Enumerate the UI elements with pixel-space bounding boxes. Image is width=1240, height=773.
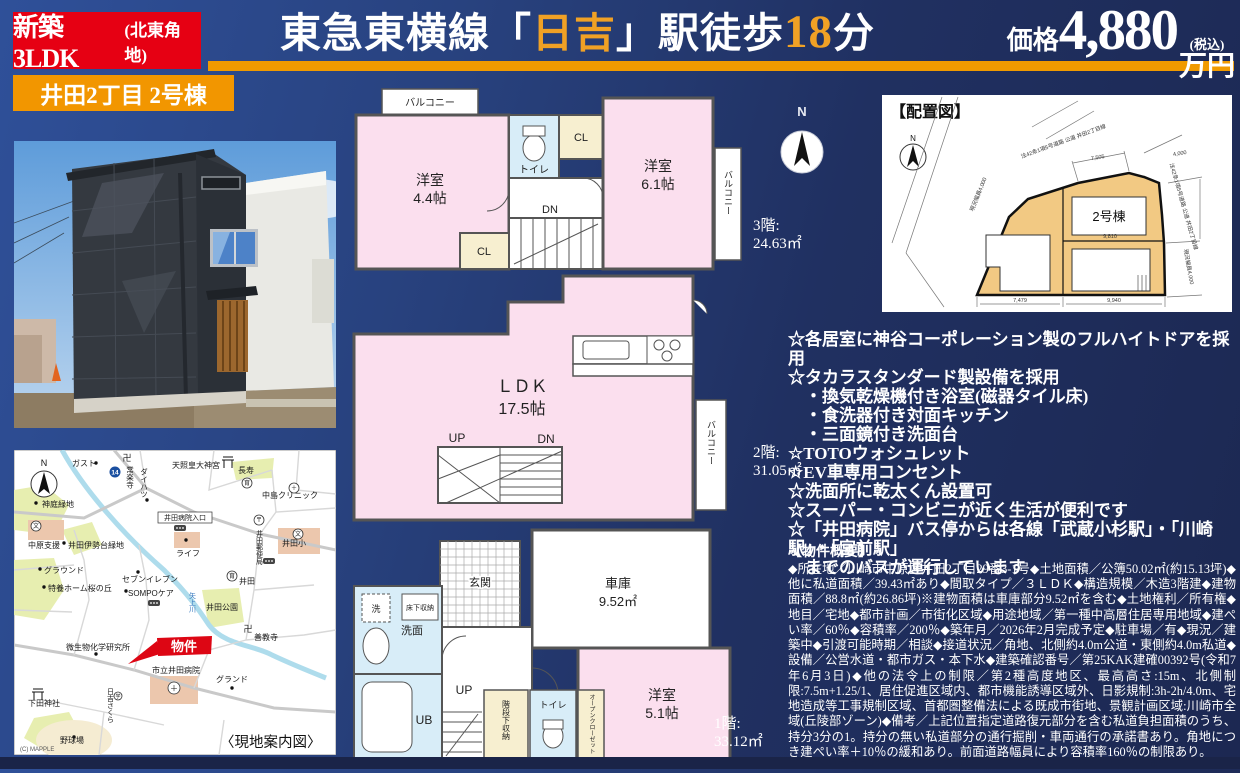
building-label: 2号棟 bbox=[1092, 209, 1125, 224]
site-plan: 【配置図】 N 2号棟 bbox=[882, 95, 1232, 312]
map-label: 野球場 bbox=[60, 735, 84, 745]
room-label: CL bbox=[477, 246, 491, 258]
feature-item: ・換気乾燥機付き浴室(磁器タイル床) bbox=[788, 387, 1240, 406]
room-size: 9.52㎡ bbox=[599, 594, 637, 609]
map-label: 井田小 bbox=[282, 538, 306, 548]
title-seg2: 」駅徒歩 bbox=[616, 10, 784, 56]
stairs-dn-label: DN bbox=[537, 432, 554, 446]
floor-area: 33.12㎡ bbox=[714, 734, 763, 752]
floorplan-2f: ＬＤＫ 17.5帖 UP DN バルコニー bbox=[350, 272, 755, 524]
map-label: 善教寺 bbox=[254, 632, 278, 642]
compass-n: N bbox=[41, 458, 48, 468]
room-size: 17.5帖 bbox=[498, 400, 545, 418]
room-label: バルコニー bbox=[723, 170, 733, 215]
header-underline bbox=[208, 61, 1234, 71]
site-plan-title: 【配置図】 bbox=[890, 103, 970, 121]
feature-item: ☆スーパー・コンビニが近く生活が便利です bbox=[788, 501, 1240, 520]
svg-text:〒: 〒 bbox=[256, 517, 262, 524]
location-badge: 井田2丁目 2号棟 bbox=[13, 75, 234, 111]
map-label: 井田公園 bbox=[206, 602, 238, 612]
price-label: 価格 bbox=[1007, 20, 1059, 57]
map-label: セブンイレブン bbox=[122, 574, 178, 584]
map-label: 日吉さくら bbox=[107, 688, 115, 723]
room-label: トイレ bbox=[539, 700, 566, 710]
compass-n: N bbox=[797, 104, 806, 119]
stairs-up-label: UP bbox=[456, 683, 473, 697]
stairs-up-label: UP bbox=[449, 431, 466, 445]
feature-item: ☆タカラスタンダード製設備を採用 bbox=[788, 368, 1240, 387]
map-label: 市立井田病院 bbox=[152, 665, 200, 675]
room-size: 6.1帖 bbox=[641, 176, 674, 192]
feature-item: ☆各居室に神谷コーポレーション製のフルハイトドアを採用 bbox=[788, 330, 1240, 368]
svg-text:文: 文 bbox=[33, 522, 39, 530]
new-build-badge: 新築3LDK (北東角地) bbox=[13, 12, 201, 69]
map-label: 中原支援 bbox=[28, 540, 60, 550]
room-label: 玄関 bbox=[469, 575, 491, 589]
overview-body: ◆所在地／川崎市中原区井田2丁目29番3-1号◆土地面積／公簿50.02㎡(約1… bbox=[788, 562, 1236, 760]
room-label: トイレ bbox=[519, 165, 549, 176]
stairs-dn-label: DN bbox=[542, 204, 558, 216]
map-label: グランド bbox=[216, 674, 248, 684]
feature-item: ・三面鏡付き洗面台 bbox=[788, 425, 1240, 444]
map-label: 井田郵便局 bbox=[256, 529, 264, 566]
floor-area: 24.63㎡ bbox=[753, 236, 802, 254]
map-label: 中島クリニック bbox=[262, 490, 318, 500]
temple-icon: 卍 bbox=[243, 624, 252, 634]
route-number: 14 bbox=[111, 470, 119, 477]
map-caption: 〈現地案内図〉 bbox=[220, 733, 322, 751]
map-label: グラウンド bbox=[44, 565, 84, 575]
room-label: バルコニー bbox=[405, 97, 455, 109]
map-label: ライフ bbox=[176, 549, 200, 558]
svg-text:育: 育 bbox=[229, 572, 235, 580]
dim-label: 7,479 bbox=[1013, 298, 1027, 304]
map-label: 特養ホーム桜の丘 bbox=[48, 583, 112, 593]
floor-name: 3階: bbox=[753, 218, 802, 236]
price-block: 価格 4,880 (税込) 万円 bbox=[900, 2, 1235, 60]
room-size: 5.1帖 bbox=[645, 705, 678, 721]
map-label: 井田 bbox=[239, 576, 255, 586]
dim-label: 9,940 bbox=[1107, 298, 1121, 304]
station-name: 日吉 bbox=[532, 10, 616, 56]
map-label: SOMPOケア bbox=[128, 589, 174, 598]
compass-n: N bbox=[910, 134, 916, 143]
badge-sub-text: (北東角地) bbox=[124, 16, 201, 66]
dim-label: 9,810 bbox=[1103, 234, 1117, 240]
title-seg3: 分 bbox=[833, 10, 875, 56]
area-map: N 文文 育育 〒＋ ＋学 bbox=[14, 450, 336, 755]
svg-text:＋: ＋ bbox=[170, 684, 178, 693]
room-label: 洗面 bbox=[401, 624, 423, 637]
svg-text:育: 育 bbox=[244, 479, 250, 487]
house-photo-art bbox=[14, 141, 336, 428]
page-title: 東急東横線「日吉」駅徒歩18分 bbox=[280, 3, 875, 61]
floor-name: 1階: bbox=[714, 716, 763, 734]
feature-item: ☆EV車専用コンセント bbox=[788, 463, 1240, 482]
property-label: 物件 bbox=[171, 639, 197, 654]
bottom-border bbox=[0, 757, 1240, 769]
price-unit: 万円 bbox=[1179, 52, 1235, 82]
feature-item: ・食洗器付き対面キッチン bbox=[788, 406, 1240, 425]
floorplan-3f: バルコニー トイレ CL CL 洋室 4.4帖 DN 洋室 6.1帖 バルコニー bbox=[352, 86, 747, 276]
house-photo bbox=[14, 141, 336, 428]
feature-item: ☆TOTOウォシュレット bbox=[788, 444, 1240, 463]
room-label: ＬＤＫ bbox=[497, 377, 548, 396]
svg-text:文: 文 bbox=[295, 530, 301, 538]
room-label: UB bbox=[416, 713, 433, 727]
price-tax-note: (税込) bbox=[1190, 38, 1225, 52]
room-label: CL bbox=[574, 132, 588, 144]
real-estate-flyer: 新築3LDK (北東角地) 井田2丁目 2号棟 東急東横線「日吉」駅徒歩18分 … bbox=[0, 0, 1240, 769]
room-label: バルコニー bbox=[706, 420, 716, 465]
room-label: 洋室 bbox=[648, 687, 676, 703]
price-amount: 4,880 bbox=[1059, 2, 1177, 60]
room-size: 4.4帖 bbox=[413, 190, 446, 206]
temple-icon: 卍 bbox=[122, 453, 131, 463]
map-label: 井田伊勢台緑地 bbox=[68, 540, 124, 550]
map-label: 下田神社 bbox=[28, 698, 60, 708]
bus-stop-label: 井田病院入口 bbox=[164, 513, 206, 522]
river-label: 矢上川 bbox=[189, 591, 197, 613]
map-label: 常楽寺 bbox=[125, 466, 134, 489]
room-label: オープンクローゼット bbox=[588, 694, 595, 754]
map-label: 神庭緑地 bbox=[42, 499, 74, 509]
room-label: 車庫 bbox=[605, 576, 631, 591]
compass-icon: N bbox=[772, 100, 832, 185]
map-label: 長寿 bbox=[238, 465, 254, 475]
overview-title: 【物件概要】 bbox=[788, 541, 1236, 561]
map-label: ダイハツ bbox=[139, 467, 148, 498]
title-seg1: 東急東横線「 bbox=[280, 10, 532, 56]
map-copyright: (C) MAPPLE bbox=[20, 747, 54, 753]
room-label: 階段下収納 bbox=[502, 699, 511, 741]
room-label: 洋室 bbox=[416, 172, 444, 188]
room-label: 洋室 bbox=[644, 158, 672, 174]
map-label: ガスト bbox=[72, 458, 96, 468]
feature-list: ☆各居室に神谷コーポレーション製のフルハイトドアを採用 ☆タカラスタンダード製設… bbox=[788, 330, 1240, 577]
map-label: 微生物化学研究所 bbox=[66, 642, 130, 652]
floor-area-3f: 3階: 24.63㎡ bbox=[753, 218, 802, 253]
floor-area-1f: 1階: 33.12㎡ bbox=[714, 716, 763, 751]
svg-text:学: 学 bbox=[115, 693, 120, 700]
property-overview: 【物件概要】 ◆所在地／川崎市中原区井田2丁目29番3-1号◆土地面積／公簿50… bbox=[788, 541, 1236, 760]
badge-main-text: 新築3LDK bbox=[13, 7, 124, 74]
walk-minutes: 18 bbox=[784, 6, 833, 58]
floorplan-1f: 車庫 9.52㎡ 玄関 洗 床下収納 洗面 UB UP 階段下収納 トイレ オー… bbox=[342, 528, 770, 768]
map-label: 天照皇大神宮 bbox=[172, 460, 220, 470]
feature-item: ☆洗面所に乾太くん設置可 bbox=[788, 482, 1240, 501]
room-label: 床下収納 bbox=[406, 603, 434, 612]
room-label: 洗 bbox=[371, 603, 380, 614]
